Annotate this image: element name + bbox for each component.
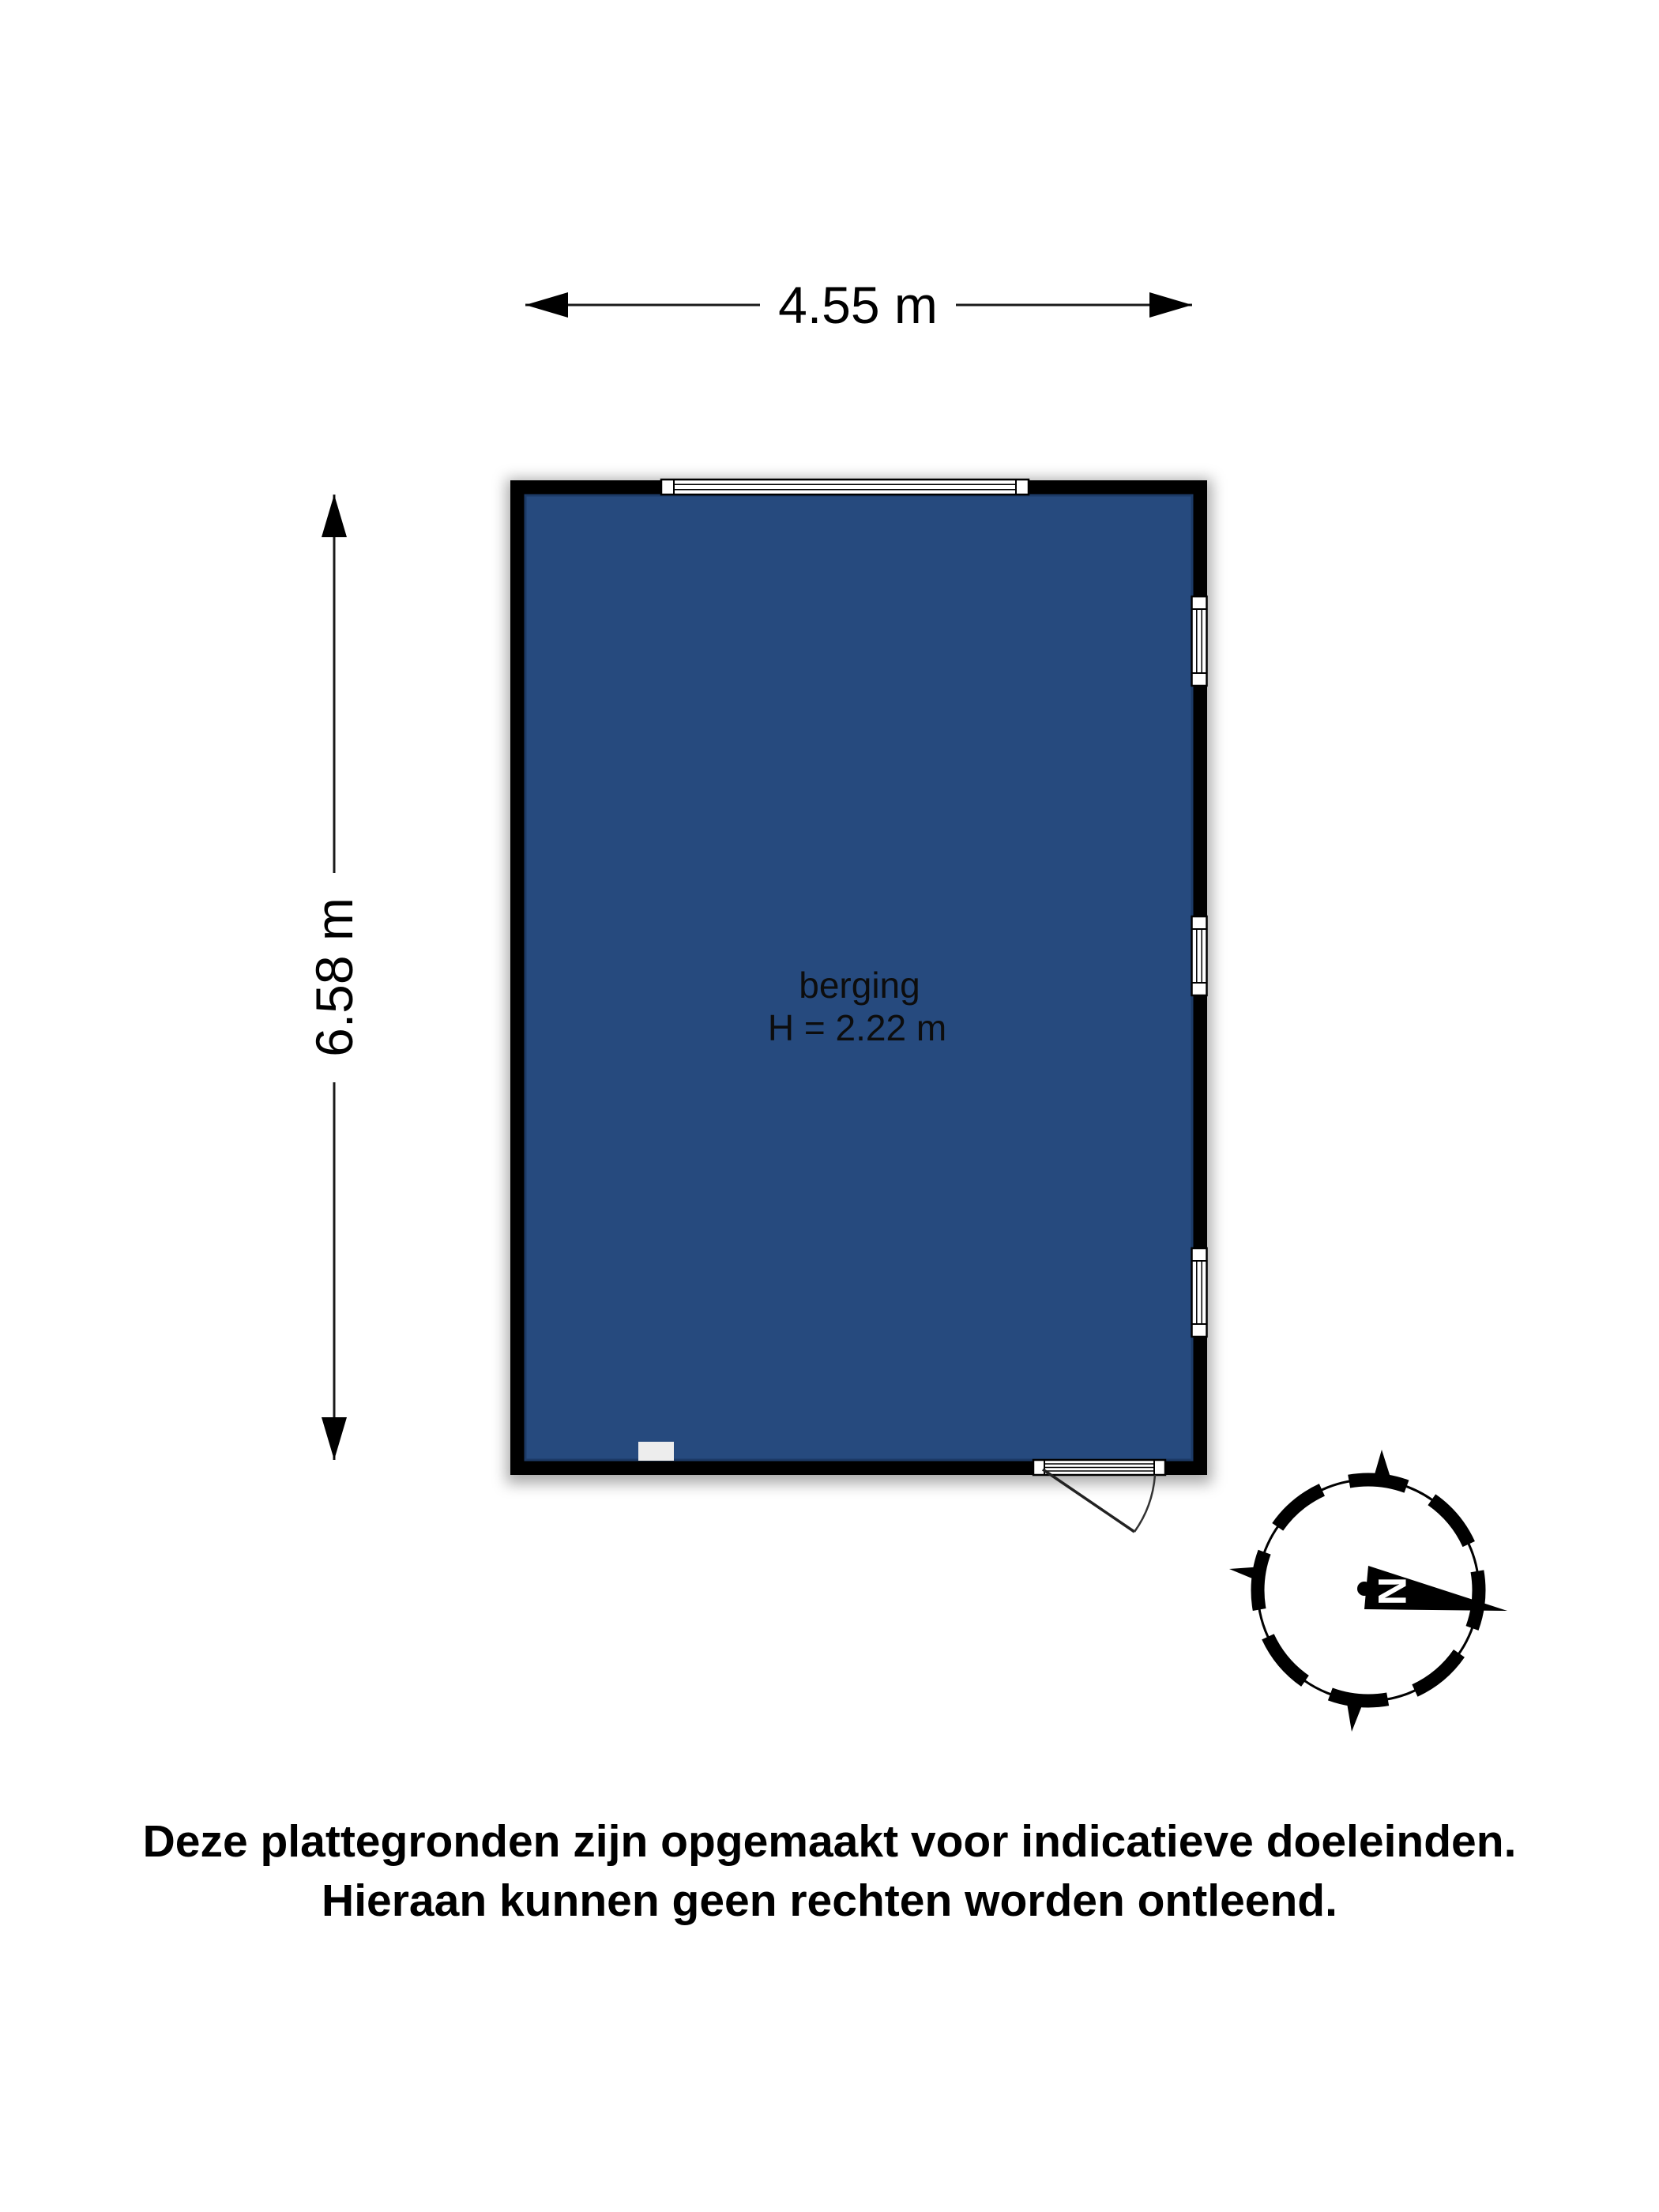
room-name-label: berging (799, 965, 920, 1006)
window-top-icon (661, 480, 1029, 495)
disclaimer-line-1: Deze plattegronden zijn opgemaakt voor i… (143, 1816, 1517, 1867)
door-icon (1033, 1460, 1165, 1532)
width-dimension-label: 4.55 m (778, 276, 938, 334)
floorplan-canvas: 4.55 m 6.58 m berging H = 2.22 m N Deze … (0, 0, 1659, 2212)
dimension-width: 4.55 m (525, 276, 1192, 334)
height-dimension-label: 6.58 m (305, 897, 363, 1057)
compass-icon: N (1229, 1450, 1507, 1732)
arrow-right-icon (1149, 292, 1192, 318)
disclaimer-line-2: Hieraan kunnen geen rechten worden ontle… (322, 1875, 1337, 1926)
floorplan-page: 4.55 m 6.58 m berging H = 2.22 m N Deze … (0, 0, 1659, 2212)
window-right-2-icon (1192, 916, 1207, 995)
fixture-box (638, 1442, 674, 1461)
arrow-up-icon (322, 495, 347, 537)
dimension-height: 6.58 m (305, 495, 363, 1460)
window-right-1-icon (1192, 596, 1207, 686)
room-ceiling-height-label: H = 2.22 m (768, 1007, 946, 1048)
arrow-left-icon (525, 292, 568, 318)
window-right-3-icon (1192, 1248, 1207, 1337)
arrow-down-icon (322, 1417, 347, 1460)
compass-north-label: N (1370, 1577, 1414, 1605)
